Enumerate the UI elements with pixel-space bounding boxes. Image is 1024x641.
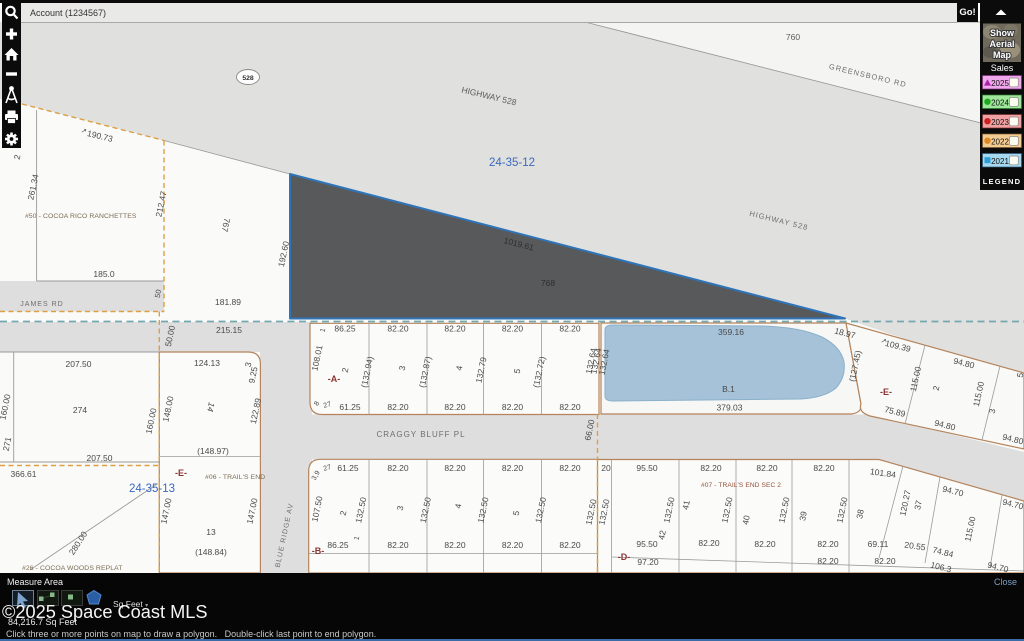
svg-text:86.25: 86.25 [334, 324, 356, 334]
svg-text:82.20: 82.20 [559, 540, 581, 550]
svg-text:Map: Map [993, 50, 1012, 60]
svg-text:82.20: 82.20 [387, 463, 409, 473]
svg-text:82.20: 82.20 [817, 556, 839, 566]
svg-text:#26 - COCOA WOODS REPLAT: #26 - COCOA WOODS REPLAT [22, 565, 122, 572]
svg-text:82.20: 82.20 [817, 539, 839, 549]
svg-text:LEGEND: LEGEND [983, 177, 1021, 186]
svg-text:-E-: -E- [175, 468, 187, 478]
svg-text:82.20: 82.20 [874, 556, 896, 566]
svg-text:768: 768 [541, 278, 555, 288]
svg-text:82.20: 82.20 [559, 324, 581, 334]
svg-text:528: 528 [242, 75, 254, 82]
svg-text:82.20: 82.20 [444, 463, 466, 473]
svg-text:61.25: 61.25 [337, 463, 359, 473]
svg-text:Aerial: Aerial [989, 39, 1014, 49]
svg-text:95.50: 95.50 [636, 463, 658, 473]
svg-text:274: 274 [73, 405, 87, 415]
svg-text:82.20: 82.20 [502, 540, 524, 550]
svg-text:181.89: 181.89 [215, 297, 241, 307]
svg-text:CRAGGY BLUFF PL: CRAGGY BLUFF PL [376, 430, 465, 439]
svg-text:#07 - TRAIL'S END SEC 2: #07 - TRAIL'S END SEC 2 [701, 482, 781, 489]
svg-text:-B-: -B- [312, 546, 325, 556]
svg-text:82.20: 82.20 [387, 540, 409, 550]
svg-text:24-35-12: 24-35-12 [489, 157, 535, 169]
svg-text:82.20: 82.20 [754, 539, 776, 549]
svg-text:82.20: 82.20 [444, 402, 466, 412]
svg-text:-D-: -D- [618, 552, 631, 562]
svg-text:2021: 2021 [991, 157, 1009, 166]
svg-text:20: 20 [601, 463, 611, 473]
svg-text:82.20: 82.20 [444, 540, 466, 550]
svg-text:#50 - COCOA RICO RANCHETTES: #50 - COCOA RICO RANCHETTES [25, 213, 137, 220]
svg-text:379.03: 379.03 [717, 403, 743, 413]
svg-text:#06 - TRAIL'S END: #06 - TRAIL'S END [205, 474, 265, 481]
svg-text:B.1: B.1 [722, 384, 735, 394]
svg-text:359.16: 359.16 [718, 327, 744, 337]
svg-text:185.0: 185.0 [93, 269, 115, 279]
svg-text:82.20: 82.20 [559, 402, 581, 412]
svg-text:(148.97): (148.97) [197, 446, 229, 456]
svg-text:2025: 2025 [991, 79, 1009, 88]
svg-text:82.20: 82.20 [698, 538, 720, 548]
svg-text:2022: 2022 [991, 138, 1009, 147]
svg-text:82.20: 82.20 [387, 402, 409, 412]
svg-text:61.25: 61.25 [339, 402, 361, 412]
svg-text:124.13: 124.13 [194, 358, 220, 368]
svg-text:13: 13 [206, 527, 216, 537]
svg-text:Show: Show [990, 28, 1015, 38]
svg-text:82.20: 82.20 [559, 463, 581, 473]
svg-text:82.20: 82.20 [444, 324, 466, 334]
svg-text:95.50: 95.50 [636, 539, 658, 549]
svg-text:82.20: 82.20 [387, 324, 409, 334]
svg-text:82.20: 82.20 [502, 463, 524, 473]
svg-text:82.20: 82.20 [502, 402, 524, 412]
svg-text:24-35-13: 24-35-13 [129, 483, 175, 495]
svg-text:207.50: 207.50 [66, 359, 92, 369]
svg-text:2024: 2024 [991, 99, 1009, 108]
svg-text:-A-: -A- [328, 374, 341, 384]
svg-text:86.25: 86.25 [327, 540, 349, 550]
svg-text:97.20: 97.20 [637, 557, 659, 567]
svg-text:JAMES RD: JAMES RD [20, 301, 63, 308]
svg-text:215.15: 215.15 [216, 325, 242, 335]
svg-text:69.11: 69.11 [868, 539, 889, 549]
svg-text:-E-: -E- [880, 387, 892, 397]
svg-text:Sales: Sales [991, 63, 1014, 73]
svg-text:82.20: 82.20 [700, 463, 722, 473]
svg-text:(148.84): (148.84) [195, 547, 227, 557]
svg-text:207.50: 207.50 [87, 453, 113, 463]
svg-text:366.61: 366.61 [11, 469, 37, 479]
svg-text:82.20: 82.20 [756, 463, 778, 473]
svg-text:82.20: 82.20 [502, 324, 524, 334]
svg-text:82.20: 82.20 [813, 463, 835, 473]
svg-text:760: 760 [786, 32, 800, 42]
svg-text:2023: 2023 [991, 118, 1009, 127]
